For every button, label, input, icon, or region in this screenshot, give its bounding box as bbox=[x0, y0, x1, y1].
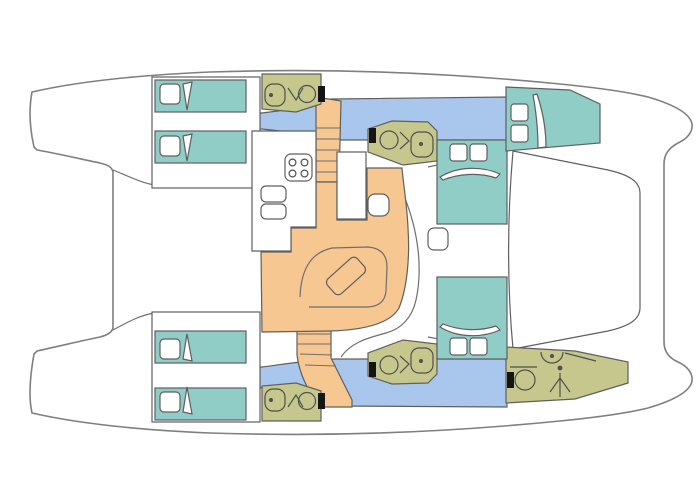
walkway-seat bbox=[428, 228, 448, 250]
door-marker bbox=[369, 362, 376, 377]
stern-deck-edge-top bbox=[113, 170, 155, 185]
bathroom-mid-starboard bbox=[368, 340, 437, 384]
door-marker bbox=[369, 128, 376, 143]
door-marker bbox=[318, 86, 325, 102]
stove-icon bbox=[285, 154, 312, 181]
hatch-icon bbox=[511, 125, 528, 142]
galley-sink-icon bbox=[261, 204, 286, 219]
floor-plan-canvas bbox=[0, 0, 700, 500]
pillow bbox=[160, 392, 180, 412]
pillow bbox=[160, 339, 180, 359]
hatch-icon bbox=[450, 338, 467, 355]
hatch-icon bbox=[511, 104, 528, 121]
bathroom-bow-starboard bbox=[506, 347, 628, 403]
hatch-icon bbox=[450, 144, 467, 161]
trampoline bbox=[509, 151, 641, 349]
pillow bbox=[160, 136, 180, 156]
nav-counter bbox=[337, 152, 366, 219]
door-marker bbox=[318, 393, 325, 409]
bathroom-mid-port bbox=[368, 121, 437, 165]
nav-seat bbox=[368, 194, 389, 216]
galley-sink-icon bbox=[261, 186, 286, 202]
stern-deck-edge-bottom bbox=[113, 313, 155, 330]
catamaran-floor-plan bbox=[0, 0, 700, 500]
pillow bbox=[160, 84, 180, 104]
door-marker bbox=[507, 372, 514, 388]
hatch-icon bbox=[470, 338, 487, 355]
hatch-icon bbox=[470, 144, 487, 161]
